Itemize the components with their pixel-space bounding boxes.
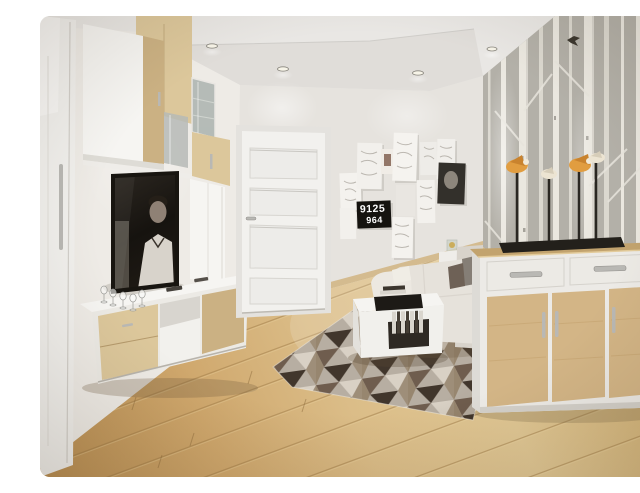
scene-canvas: 9125 964 bbox=[40, 16, 640, 477]
living-room-photo: 9125 964 bbox=[40, 16, 640, 477]
photo-vignette bbox=[40, 16, 640, 477]
